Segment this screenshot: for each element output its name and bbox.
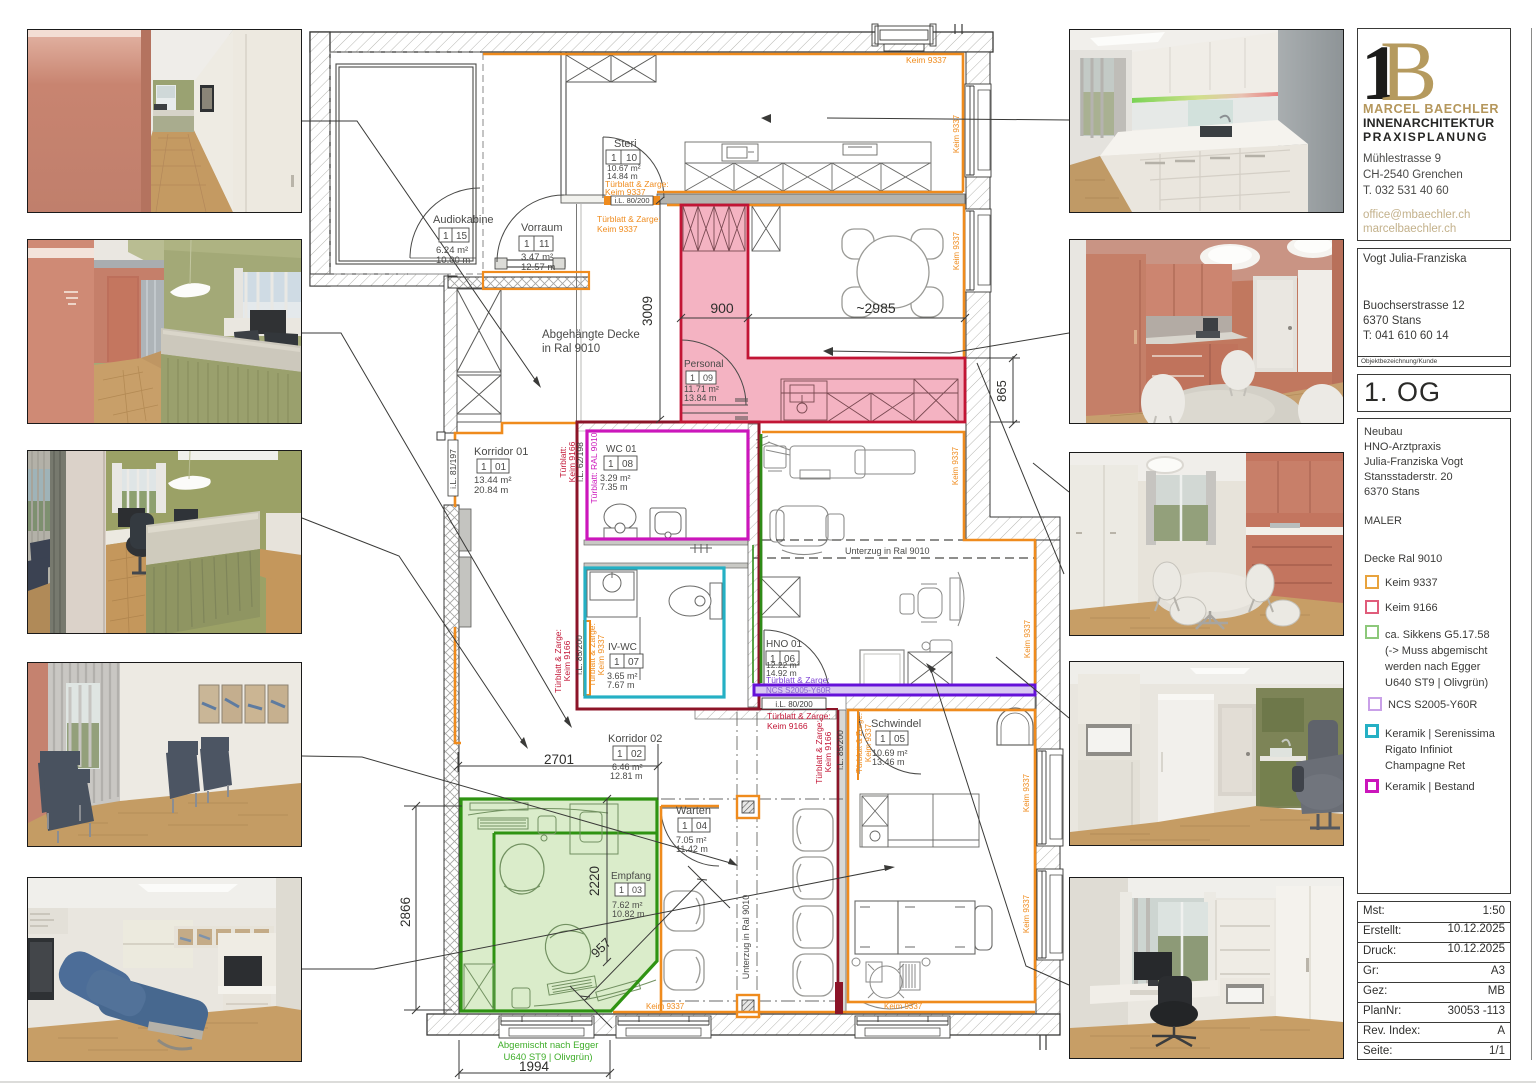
svg-text:Schwindel: Schwindel xyxy=(871,718,921,730)
svg-text:Keim 9337: Keim 9337 xyxy=(906,55,947,65)
svg-text:Keim 9166: Keim 9166 xyxy=(823,731,833,772)
svg-text:865: 865 xyxy=(994,380,1009,402)
svg-text:Abgemischt nach Egger: Abgemischt nach Egger xyxy=(498,1040,599,1051)
svg-text:10.00 m: 10.00 m xyxy=(436,255,470,266)
svg-text:CH-2540 Grenchen: CH-2540 Grenchen xyxy=(1363,169,1463,181)
svg-text:1: 1 xyxy=(682,821,688,832)
svg-text:03: 03 xyxy=(632,885,642,895)
svg-text:20.84 m: 20.84 m xyxy=(474,485,508,496)
svg-text:Steri: Steri xyxy=(614,138,637,150)
svg-text:Vorraum: Vorraum xyxy=(521,222,563,234)
svg-text:Unterzug in Ral 9010: Unterzug in Ral 9010 xyxy=(845,546,930,556)
svg-text:INNENARCHITEKTUR: INNENARCHITEKTUR xyxy=(1363,116,1494,130)
svg-text:1: 1 xyxy=(614,657,620,668)
svg-text:Keim 9337: Keim 9337 xyxy=(1022,894,1031,933)
svg-text:Türblatt & Zarge:: Türblatt & Zarge: xyxy=(597,214,661,224)
svg-text:Keim 9166: Keim 9166 xyxy=(767,721,808,731)
svg-text:1: 1 xyxy=(690,373,695,383)
svg-text:Keim 9166: Keim 9166 xyxy=(562,640,572,681)
svg-text:Unterzug in Ral 9010: Unterzug in Ral 9010 xyxy=(741,895,751,980)
svg-text:12.57 m: 12.57 m xyxy=(521,262,555,273)
svg-text:1: 1 xyxy=(524,239,530,250)
svg-text:Keim 9337: Keim 9337 xyxy=(864,723,873,762)
svg-text:1: 1 xyxy=(617,749,623,760)
svg-text:02: 02 xyxy=(631,749,643,760)
svg-text:07: 07 xyxy=(628,657,640,668)
svg-text:i.L. 85/200: i.L. 85/200 xyxy=(574,635,584,675)
svg-text:15: 15 xyxy=(456,231,468,242)
svg-text:Abgehängte Decke: Abgehängte Decke xyxy=(542,329,640,341)
svg-text:Türblatt & Zarge:: Türblatt & Zarge: xyxy=(766,675,830,685)
svg-text:7.35 m: 7.35 m xyxy=(600,482,628,492)
svg-text:10.82 m: 10.82 m xyxy=(612,909,645,919)
svg-text:Mühlestrasse 9: Mühlestrasse 9 xyxy=(1363,153,1441,165)
svg-text:Türblatt & Zarge:: Türblatt & Zarge: xyxy=(855,713,864,773)
svg-text:Keim 9337: Keim 9337 xyxy=(646,1002,685,1011)
svg-text:i.L. 81/197: i.L. 81/197 xyxy=(448,449,458,489)
svg-text:12.81 m: 12.81 m xyxy=(610,771,643,781)
svg-text:Warten: Warten xyxy=(676,805,711,817)
svg-text:i.L. 62/198: i.L. 62/198 xyxy=(575,442,585,482)
svg-text:08: 08 xyxy=(622,459,634,470)
svg-text:1: 1 xyxy=(481,462,487,473)
svg-text:NCS S2005-Y60R: NCS S2005-Y60R xyxy=(766,686,831,695)
svg-text:Audiokabine: Audiokabine xyxy=(433,214,494,226)
svg-text:09: 09 xyxy=(703,373,713,383)
svg-text:T. 032 531 40 60: T. 032 531 40 60 xyxy=(1363,185,1449,197)
svg-text:Personal: Personal xyxy=(684,359,723,370)
svg-text:MARCEL BAECHLER: MARCEL BAECHLER xyxy=(1363,102,1499,116)
svg-text:Keim 9337: Keim 9337 xyxy=(1023,619,1032,658)
svg-text:marcelbaechler.ch: marcelbaechler.ch xyxy=(1363,223,1456,235)
svg-text:office@mbaechler.ch: office@mbaechler.ch xyxy=(1363,209,1470,221)
svg-text:11.42 m: 11.42 m xyxy=(676,844,708,854)
svg-text:Korridor 01: Korridor 01 xyxy=(474,446,528,458)
svg-text:Keim 9337: Keim 9337 xyxy=(952,114,961,153)
svg-text:13.46 m: 13.46 m xyxy=(872,757,905,767)
svg-text:2866: 2866 xyxy=(398,897,413,927)
svg-text:04: 04 xyxy=(696,821,708,832)
svg-text:01: 01 xyxy=(495,462,507,473)
svg-text:2701: 2701 xyxy=(544,752,574,767)
svg-text:Keim 9337: Keim 9337 xyxy=(597,224,638,234)
svg-text:11: 11 xyxy=(539,239,550,250)
svg-text:Keim 9337: Keim 9337 xyxy=(952,231,961,270)
svg-text:2220: 2220 xyxy=(587,866,602,896)
svg-text:U640 ST9 | Olivgrün): U640 ST9 | Olivgrün) xyxy=(503,1052,592,1063)
svg-text:Keim 9337: Keim 9337 xyxy=(951,446,960,485)
svg-text:Türblatt: RAL 9010: Türblatt: RAL 9010 xyxy=(589,432,599,503)
svg-text:WC 01: WC 01 xyxy=(606,444,637,455)
svg-text:Keim 9337: Keim 9337 xyxy=(884,1002,923,1011)
svg-text:Korridor 02: Korridor 02 xyxy=(608,733,662,745)
svg-text:IV-WC: IV-WC xyxy=(608,642,637,653)
svg-text:05: 05 xyxy=(894,734,906,745)
svg-text:1: 1 xyxy=(880,734,886,745)
svg-text:1: 1 xyxy=(443,231,449,242)
svg-text:Empfang: Empfang xyxy=(611,871,651,882)
svg-text:Türblatt & Zarge:: Türblatt & Zarge: xyxy=(767,711,831,721)
svg-text:7.67 m: 7.67 m xyxy=(607,680,635,690)
svg-text:in Ral 9010: in Ral 9010 xyxy=(542,343,600,355)
svg-text:Keim 9337: Keim 9337 xyxy=(1022,773,1031,812)
svg-text:HNO 01: HNO 01 xyxy=(766,639,803,650)
svg-text:1: 1 xyxy=(619,885,624,895)
svg-text:1: 1 xyxy=(608,459,614,470)
svg-text:900: 900 xyxy=(710,300,734,316)
svg-text:~2985: ~2985 xyxy=(856,300,896,316)
svg-text:i.L. 80/200: i.L. 80/200 xyxy=(614,196,649,205)
svg-text:i.L. 85/200: i.L. 85/200 xyxy=(835,730,845,770)
svg-text:PRAXISPLANUNG: PRAXISPLANUNG xyxy=(1363,130,1488,144)
svg-text:Keim 9337: Keim 9337 xyxy=(596,634,606,675)
svg-text:13.84 m: 13.84 m xyxy=(684,393,717,403)
svg-text:3009: 3009 xyxy=(640,296,655,326)
svg-text:i.L. 80/200: i.L. 80/200 xyxy=(775,700,813,709)
